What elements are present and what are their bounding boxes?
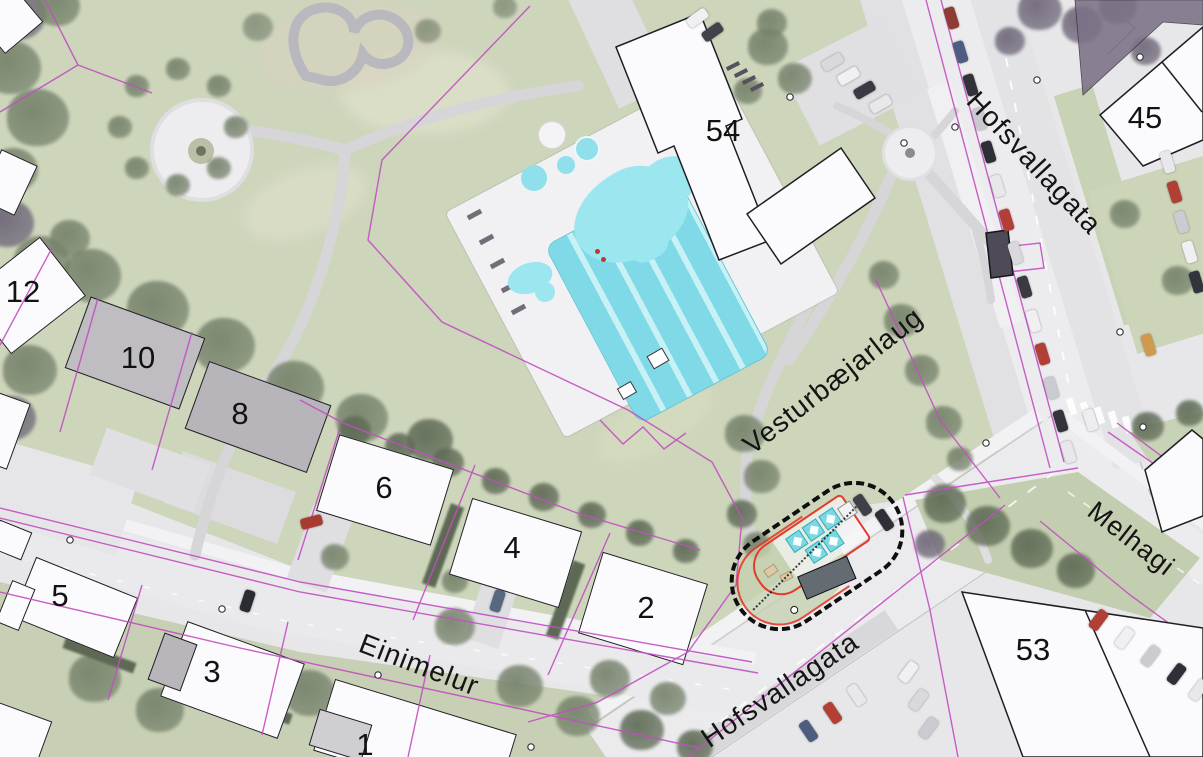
label-building-45: 45 bbox=[1128, 100, 1162, 136]
building-54-footprint bbox=[616, 13, 771, 260]
map-canvas[interactable]: HofsvallagataHofsvallagataVesturbæjarlau… bbox=[0, 0, 1203, 757]
label-building-10: 10 bbox=[121, 340, 155, 376]
label-building-6: 6 bbox=[375, 470, 392, 506]
label-building-12: 12 bbox=[6, 274, 40, 310]
label-building-5: 5 bbox=[51, 578, 68, 614]
building-53-footprint bbox=[962, 592, 1203, 757]
label-building-2: 2 bbox=[637, 590, 654, 626]
label-building-4: 4 bbox=[503, 530, 520, 566]
label-building-8: 8 bbox=[231, 396, 248, 432]
building-54-annex-footprint bbox=[747, 148, 875, 264]
label-building-54: 54 bbox=[706, 113, 740, 149]
label-building-3: 3 bbox=[203, 654, 220, 690]
building-ne-melhagi-footprint bbox=[1145, 430, 1203, 532]
bus-shelter bbox=[986, 230, 1013, 278]
label-building-53: 53 bbox=[1016, 632, 1050, 668]
label-building-1: 1 bbox=[356, 727, 373, 757]
